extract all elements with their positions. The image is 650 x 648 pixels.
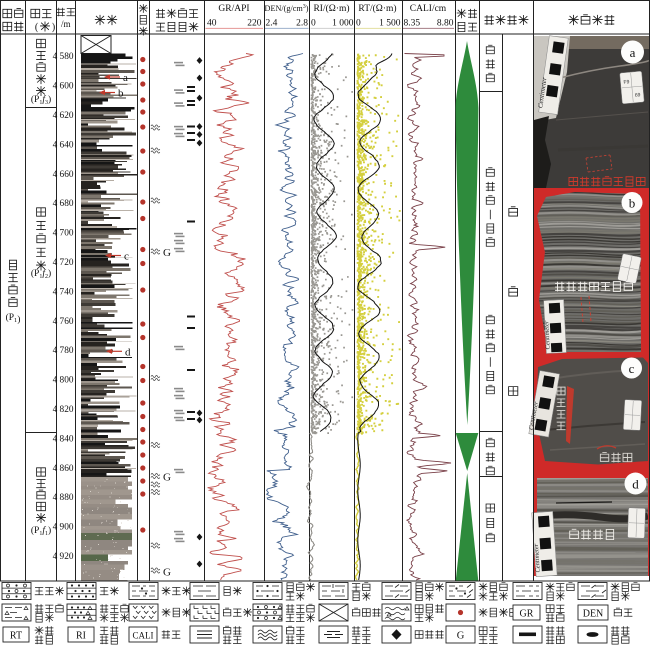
- svg-text:220: 220: [247, 19, 262, 29]
- svg-text:F9: F9: [623, 79, 630, 86]
- svg-text:1 000: 1 000: [332, 19, 354, 29]
- svg-text:4 700: 4 700: [53, 229, 74, 239]
- svg-text:0: 0: [311, 19, 316, 29]
- svg-text:1 500: 1 500: [379, 19, 401, 29]
- svg-text:8.80: 8.80: [437, 19, 454, 29]
- svg-text:c: c: [629, 361, 635, 376]
- svg-text:4 840: 4 840: [53, 434, 74, 444]
- svg-text:/m: /m: [61, 19, 71, 29]
- svg-text:2.8: 2.8: [296, 19, 308, 29]
- svg-text:40: 40: [207, 19, 217, 29]
- svg-text:RT/(Ω·m): RT/(Ω·m): [358, 3, 396, 14]
- svg-text:G: G: [163, 247, 171, 259]
- svg-text:4 660: 4 660: [53, 170, 74, 180]
- svg-text:4 720: 4 720: [53, 258, 74, 268]
- svg-text:4 860: 4 860: [53, 464, 74, 474]
- svg-text:GR: GR: [520, 609, 534, 620]
- svg-text:a: a: [123, 72, 128, 84]
- svg-text:G: G: [163, 567, 171, 579]
- svg-text:RT: RT: [10, 631, 22, 642]
- svg-text:b: b: [629, 196, 636, 211]
- svg-text:4 900: 4 900: [53, 523, 74, 533]
- svg-text:4 800: 4 800: [53, 376, 74, 386]
- svg-text:b: b: [118, 88, 124, 100]
- svg-text:4 620: 4 620: [53, 111, 74, 121]
- svg-text:4 820: 4 820: [53, 405, 74, 415]
- svg-text:4 880: 4 880: [53, 493, 74, 503]
- svg-text:a: a: [630, 45, 636, 60]
- svg-text:GR/API: GR/API: [218, 4, 249, 14]
- svg-text:RI: RI: [76, 631, 86, 642]
- svg-text:4 600: 4 600: [53, 82, 74, 92]
- svg-text:G: G: [457, 631, 465, 642]
- svg-text:8.35: 8.35: [404, 19, 421, 29]
- svg-text:4 640: 4 640: [53, 140, 74, 150]
- svg-text:4 760: 4 760: [53, 317, 74, 327]
- svg-text:4 740: 4 740: [53, 287, 74, 297]
- svg-text:0: 0: [356, 19, 361, 29]
- svg-text:4 680: 4 680: [53, 199, 74, 209]
- svg-text:69: 69: [635, 92, 641, 98]
- svg-text:2.4: 2.4: [266, 19, 278, 29]
- svg-text:d: d: [632, 477, 639, 492]
- svg-text:CALI: CALI: [133, 631, 154, 641]
- svg-text:): ): [52, 22, 55, 33]
- svg-text:DEN: DEN: [583, 609, 604, 620]
- svg-text:4 920: 4 920: [53, 552, 74, 562]
- svg-text:4 780: 4 780: [53, 346, 74, 356]
- svg-text:d: d: [125, 346, 131, 358]
- svg-text:DEN/(g/cm3): DEN/(g/cm3): [265, 4, 309, 13]
- svg-text:c: c: [124, 251, 129, 263]
- svg-text:4 580: 4 580: [53, 52, 74, 62]
- svg-text:CALI/cm: CALI/cm: [410, 4, 447, 14]
- svg-text:G: G: [163, 472, 171, 484]
- svg-text:RI/(Ω·m): RI/(Ω·m): [313, 3, 349, 14]
